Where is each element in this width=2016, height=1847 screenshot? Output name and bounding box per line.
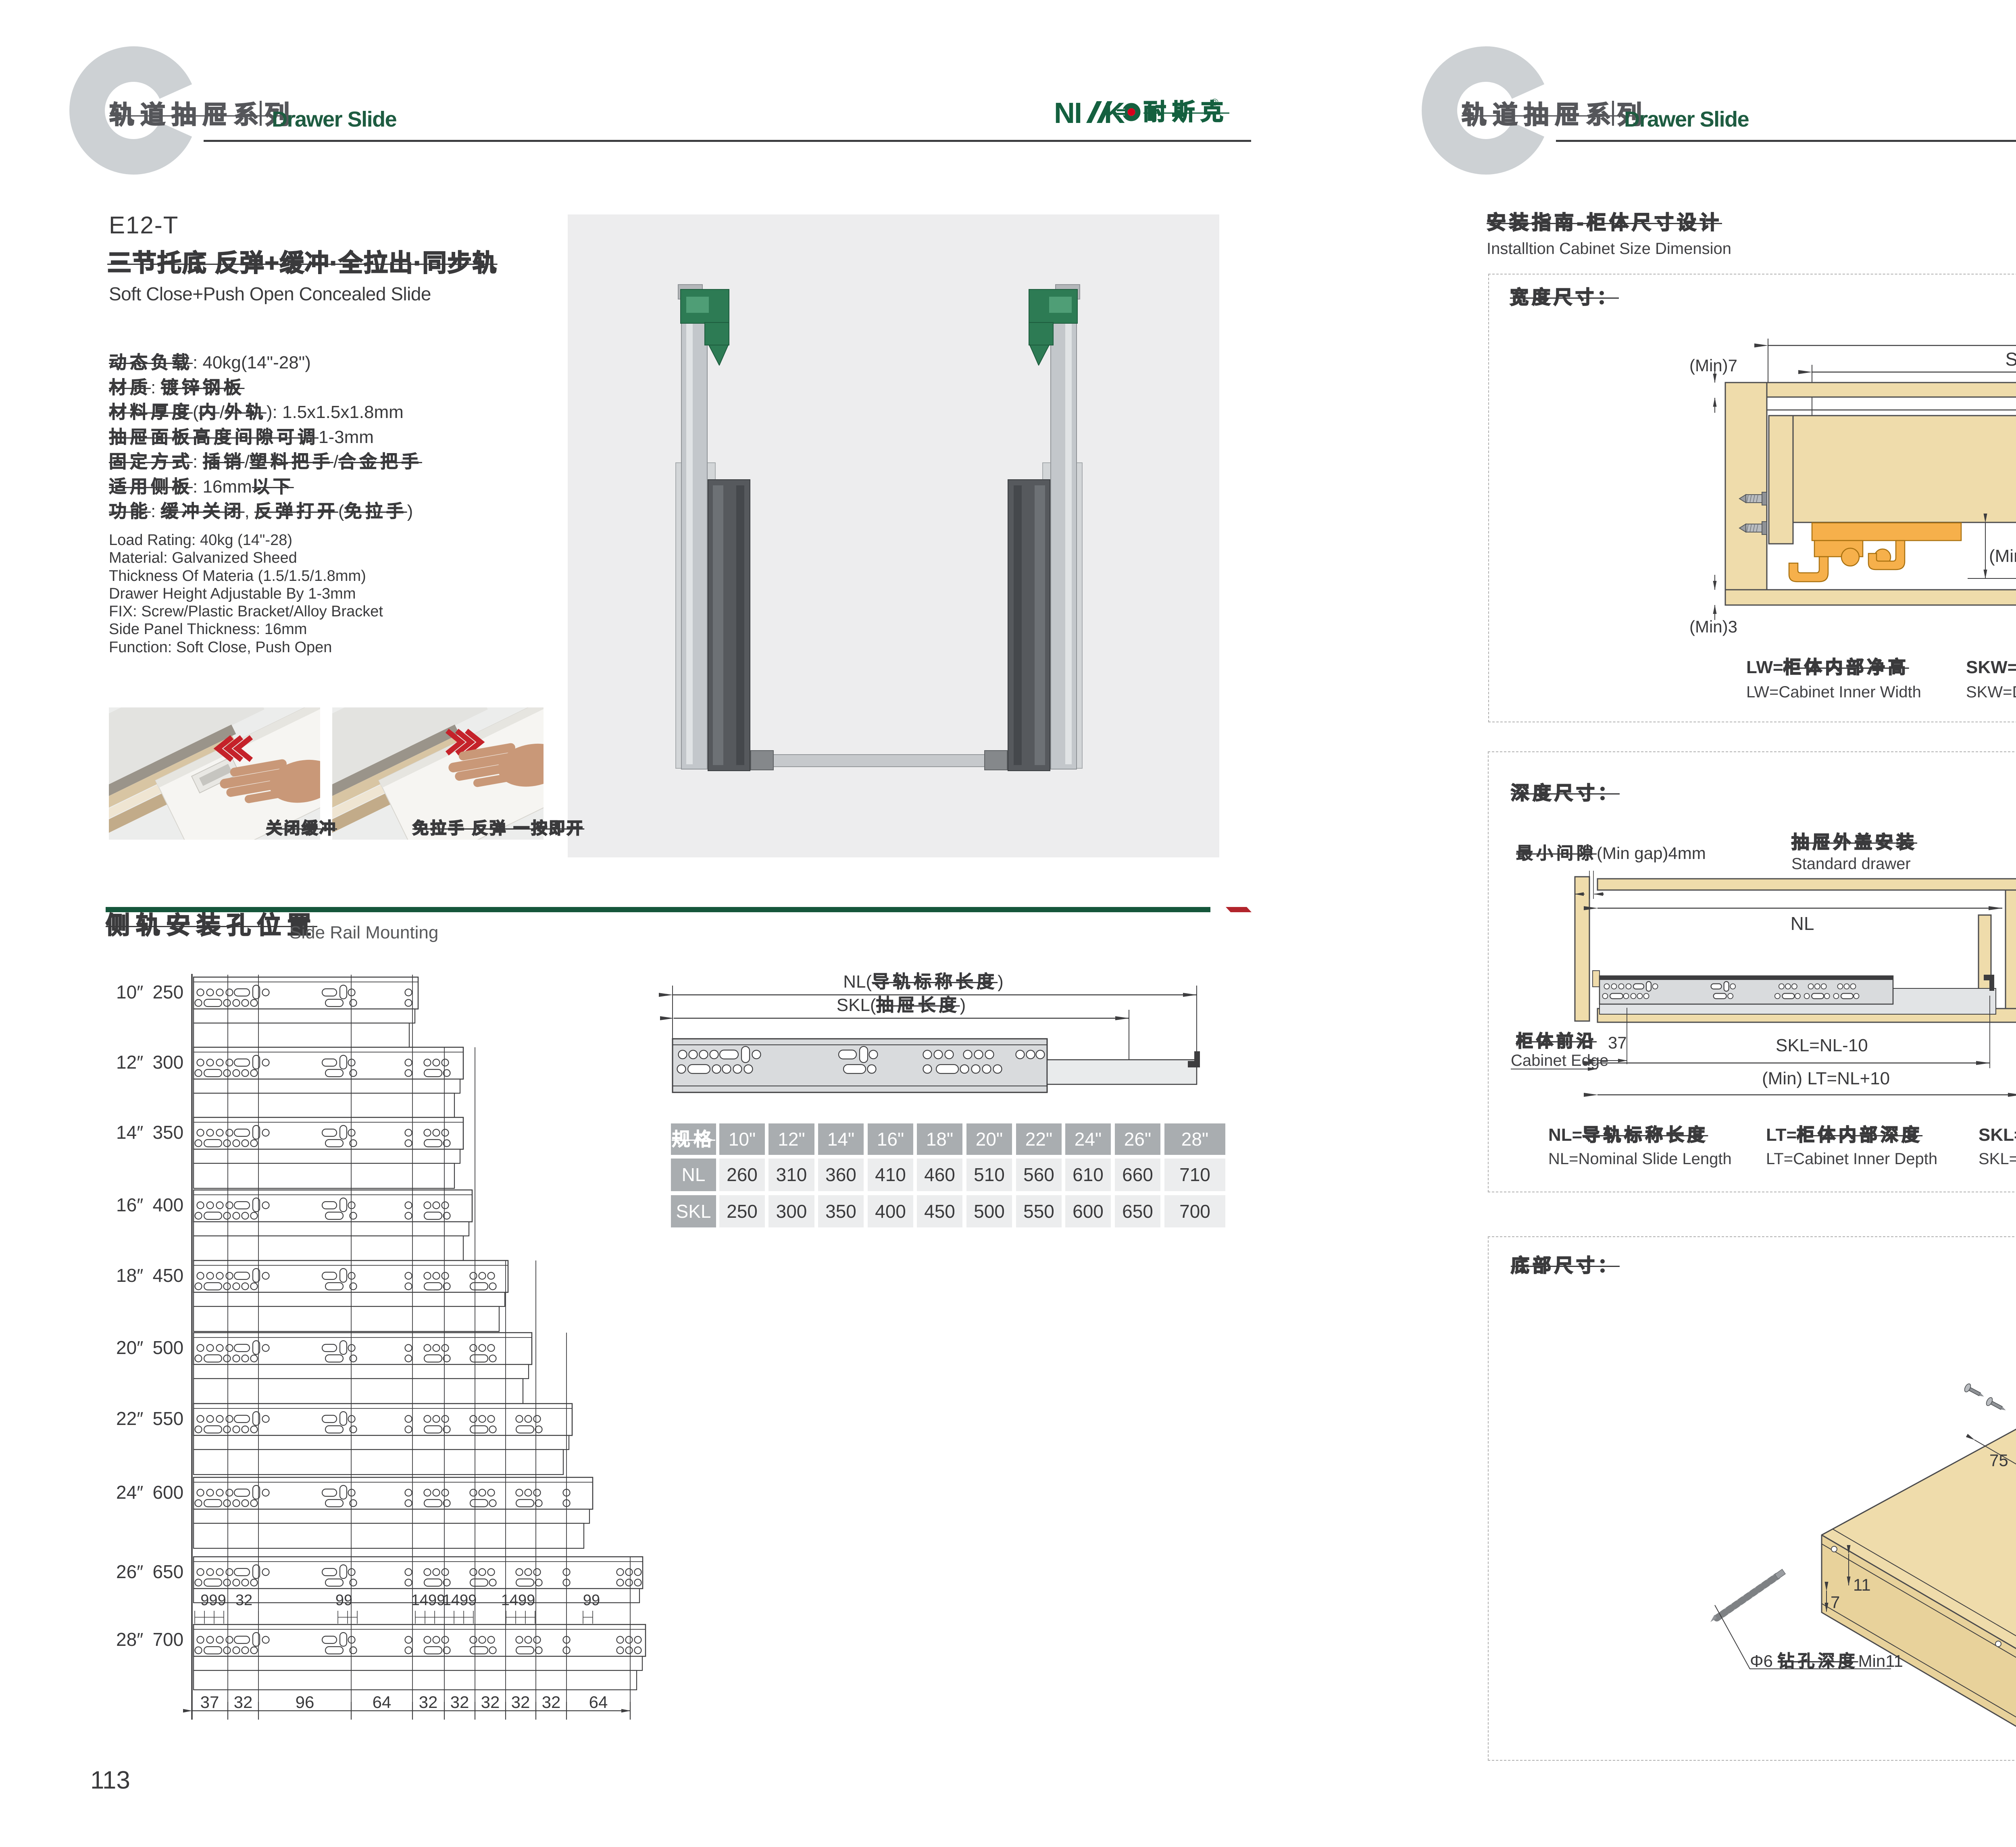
svg-text:NI: NI: [1054, 97, 1081, 129]
